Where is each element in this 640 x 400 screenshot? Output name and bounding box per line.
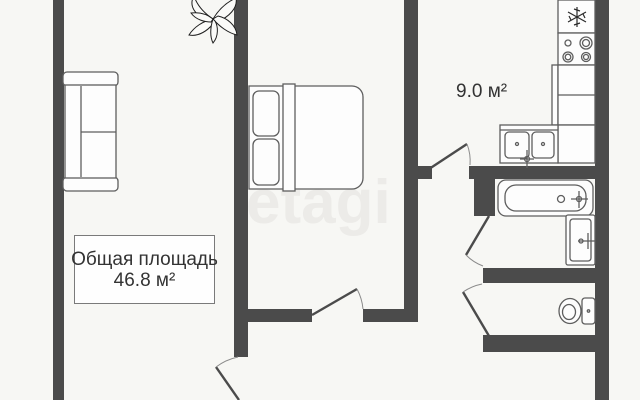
total-area-title: Общая площадь [71, 249, 218, 270]
wall-bedroom-kitchen [404, 0, 418, 322]
kitchen-door [426, 144, 470, 171]
total-area-value: 46.8 м² [114, 270, 176, 291]
washbasin [566, 215, 595, 265]
wc-door [463, 284, 489, 336]
kitchen-sink [500, 125, 558, 168]
fridge [558, 0, 595, 33]
bedroom-door [312, 289, 363, 315]
wall-kitchen-bottom [469, 166, 595, 179]
toilet [559, 298, 595, 324]
wall-left [53, 0, 64, 400]
kitchen-area-label: 9.0 м² [456, 81, 507, 103]
sofa [63, 72, 118, 191]
plant-icon [189, 0, 237, 43]
wall-right [595, 0, 609, 400]
bathtub [498, 180, 593, 216]
wall-bath-wc-divider [483, 268, 595, 283]
living-room-door [216, 357, 239, 400]
wall-living-bedroom [234, 0, 248, 357]
wall-bedroom-bottom-left [248, 309, 312, 322]
wall-wc-bottom [483, 335, 595, 352]
wall-bathroom-left-stub [474, 179, 495, 216]
wall-bedroom-bottom-right [363, 309, 404, 322]
double-bed [249, 84, 363, 191]
floorplan-drawing [0, 0, 640, 400]
bathroom-door [466, 216, 489, 266]
total-area-box: Общая площадь 46.8 м² [74, 235, 215, 304]
stove [558, 33, 595, 65]
floorplan: etagi [0, 0, 640, 400]
